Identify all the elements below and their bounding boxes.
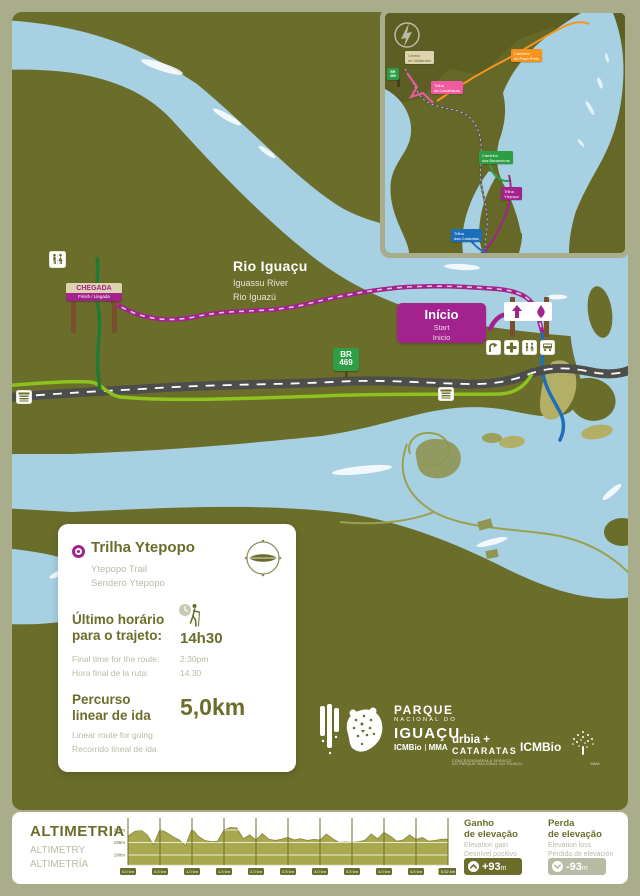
x-tick-label: 0,5 km — [154, 869, 167, 874]
inset-br469-sign: BR469 — [387, 68, 399, 80]
trailhead-sign-face — [504, 302, 552, 321]
viewpoint-icon — [486, 340, 501, 355]
trail-title-en: Ytepopo Trail — [91, 564, 147, 575]
icmbio-label: ICMBio — [394, 744, 422, 752]
distance-label-pt: Percurso linear de ida — [72, 692, 151, 724]
trail-title-es: Sendero Ytepopo — [91, 578, 165, 589]
start-en: Start — [397, 323, 486, 332]
x-tick-label: 2,5 km — [282, 869, 295, 874]
sign-post — [345, 371, 348, 378]
bus-stop-icon — [438, 387, 454, 401]
park-logo-text: PARQUE NACIONAL DO IGUAÇU ICMBio MMA — [394, 704, 460, 752]
inset-label-poco-preto: Caminhodo Poço Preto — [511, 49, 542, 62]
x-tick-label: 3,5 km — [346, 869, 359, 874]
x-tick-label: 4,0 km — [378, 869, 391, 874]
trail-title: Trilha Ytepopo — [91, 539, 195, 556]
icmbio-wordmark: ICMBio — [520, 740, 561, 754]
gain-value: +93 — [482, 861, 501, 873]
park-name-3: IGUAÇU — [394, 726, 460, 741]
distance-value: 5,0km — [180, 694, 245, 721]
x-tick-label: 0,0 km — [122, 869, 135, 874]
icmbio-tree-icon — [566, 726, 600, 760]
altimetry-title-es: ALTIMETRÍA — [30, 859, 88, 870]
elevation-profile-chart: 200m195m190m0,0 km0,5 km1,0 km1,5 km2,0 … — [108, 815, 456, 879]
x-tick-label: 2,0 km — [250, 869, 263, 874]
icmbio-logo: ICMBio MMA — [520, 726, 600, 766]
river-name-pt: Rio Iguaçu — [233, 258, 308, 274]
urbia-subline-2: DO PARQUE NACIONAL DO IGUAÇU — [452, 763, 522, 767]
distance-label-en: Linear route for going — [72, 730, 153, 740]
river-name-en: Iguassu River — [233, 278, 308, 288]
trail-bullet-icon — [72, 545, 85, 558]
chegada-title: CHEGADA — [66, 283, 122, 293]
x-tick-label: 3,0 km — [314, 869, 327, 874]
cataratas-wordmark: CATARATAS — [452, 747, 522, 757]
hiker-clock-icon — [178, 602, 204, 628]
time-label-pt: Último horário para o trajeto: — [72, 612, 164, 644]
first-aid-cross-icon — [504, 340, 519, 355]
elevation-gain-block: Ganho de elevação Elevation gain Desníve… — [464, 819, 548, 859]
chevron-down-circle-icon — [552, 861, 563, 872]
park-name-2: NACIONAL DO — [394, 718, 460, 724]
restroom-icon — [49, 251, 66, 268]
altimetry-panel: ALTIMETRIA ALTIMETRY ALTIMETRÍA 200m195m… — [12, 812, 628, 884]
elevation-gain-badge: +93 m — [464, 858, 522, 875]
distance-label-es: Recorrido lineal de ida — [72, 744, 157, 754]
y-tick-label: 195m — [114, 840, 126, 845]
inset-label-bananeiras: Caminhodas Bananeiras — [479, 151, 513, 164]
river-name-es: Rio Iguazú — [233, 292, 308, 302]
drop-icon — [536, 305, 546, 318]
jaguar-icon — [340, 704, 386, 756]
time-label-es: Hora final de la ruta: — [72, 668, 149, 678]
logo-divider — [425, 744, 426, 751]
inset-label-cataratas: Trilhadas Cataratas — [451, 229, 482, 242]
start-pt: Início — [397, 307, 486, 322]
y-tick-label: 190m — [114, 853, 126, 858]
y-tick-label: 200m — [114, 828, 126, 833]
visitor-post — [397, 79, 400, 87]
gain-unit: m — [501, 865, 507, 872]
loss-value: -93 — [566, 861, 582, 873]
x-tick-label: 1,5 km — [218, 869, 231, 874]
x-tick-label: 1,0 km — [186, 869, 199, 874]
park-logo: PARQUE NACIONAL DO IGUAÇU ICMBio MMA — [320, 704, 460, 756]
br-sign-line2: 469 — [334, 359, 358, 367]
overview-inset-map: Centrode Visitantes BR469 Trilhada Canaf… — [380, 8, 630, 258]
inset-label-canafistula: Trilhada Canafístula — [431, 81, 463, 94]
time-value-es: 14:30 — [180, 668, 201, 678]
start-label-box: Início Start Inicio — [397, 303, 486, 343]
park-name-1: PARQUE — [394, 704, 460, 716]
restroom-icon — [522, 340, 537, 355]
inset-terrain — [385, 13, 625, 253]
trailhead-sign — [498, 295, 558, 339]
x-tick-label: 4,5 km — [410, 869, 423, 874]
chevron-up-circle-icon — [468, 861, 479, 872]
elevation-loss-block: Perda de elevação Elevation loss Pérdida… — [548, 819, 632, 859]
urbia-wordmark: urbia + — [452, 734, 522, 747]
altimetry-title-en: ALTIMETRY — [30, 845, 85, 856]
chegada-subtitle: Finish / Llegada — [66, 293, 122, 301]
compass-icon — [242, 537, 284, 579]
chegada-sign: CHEGADA Finish / Llegada — [66, 283, 122, 335]
bus-stop-icon — [16, 390, 32, 404]
time-value-pt: 14h30 — [180, 630, 223, 647]
poster-frame: Rio Iguaçu Iguassu River Rio Iguazú CHEG… — [0, 0, 640, 896]
icmbio-mma-label: MMA — [520, 761, 600, 766]
elevation-loss-badge: -93 m — [548, 858, 606, 875]
up-arrow-icon — [511, 305, 523, 318]
x-tick-label: 5,02 km — [441, 869, 456, 874]
time-label-en: Final time for the route: — [72, 654, 159, 664]
river-label: Rio Iguaçu Iguassu River Rio Iguazú — [233, 258, 308, 302]
br469-road-sign: BR 469 — [333, 348, 359, 378]
loss-unit: m — [582, 865, 588, 872]
trail-info-card: Trilha Ytepopo Ytepopo Trail Sendero Yte… — [58, 524, 296, 772]
bus-stop-icon — [540, 340, 555, 355]
inset-label-ytepopo: TrilhaYtepopo — [501, 187, 522, 200]
time-value-en: 2:30pm — [180, 654, 208, 664]
mma-label: MMA — [429, 744, 448, 752]
chegada-sign-face: CHEGADA Finish / Llegada — [66, 283, 122, 301]
urbia-cataratas-logo: urbia + CATARATAS CONCESSIONÁRIA A SERVI… — [452, 734, 522, 767]
waterfall-icon — [320, 704, 340, 756]
start-es: Inicio — [397, 333, 486, 342]
inset-label-visitor-center: Centrode Visitantes — [405, 51, 434, 64]
